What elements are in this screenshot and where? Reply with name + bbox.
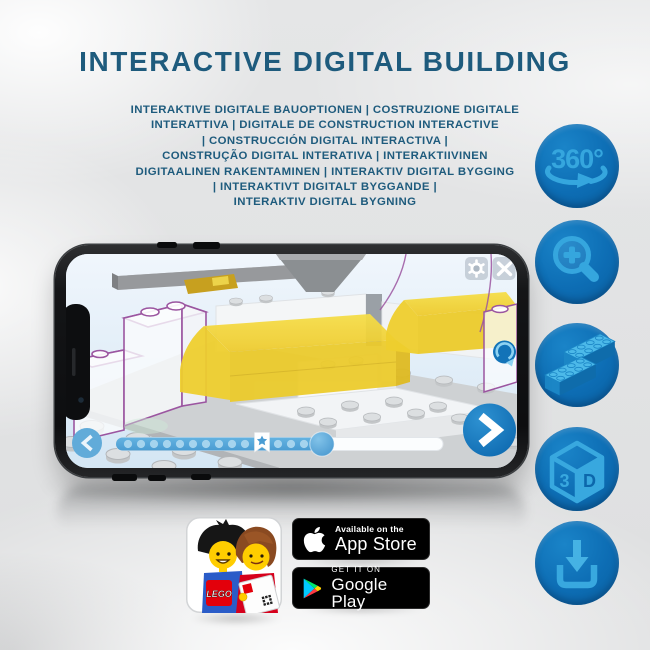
google-play-badge[interactable]: GET IT ON Google Play [292, 567, 430, 609]
zoom-in-icon [535, 220, 619, 304]
side-button [112, 474, 137, 481]
360-rotation-icon: 360° [535, 124, 619, 208]
feature-3d: 3 D [535, 427, 619, 511]
apple-icon [303, 525, 326, 554]
close-button[interactable] [493, 257, 516, 280]
cube-face-d: D [583, 471, 596, 491]
girl-hand [239, 593, 247, 601]
next-step-button[interactable] [463, 404, 516, 457]
front-camera [78, 397, 84, 403]
feature-zoom [535, 220, 619, 304]
boy-head [209, 541, 237, 569]
app-store-badge[interactable]: Available on the App Store [292, 518, 430, 560]
feature-brick [535, 323, 619, 407]
previous-step-button[interactable] [72, 428, 102, 458]
phone-screen [66, 254, 517, 468]
google-play-name: Google Play [331, 576, 419, 610]
side-button [148, 475, 166, 481]
girl-head [243, 544, 270, 571]
feature-download [535, 521, 619, 605]
marketing-panel: INTERACTIVE DIGITAL BUILDING INTERAKTIVE… [0, 0, 650, 650]
lego-brick-icon [535, 323, 619, 407]
phone-mockup [55, 245, 528, 477]
lego-logo-text: LEGO [206, 589, 232, 599]
app-store-name: App Store [335, 535, 417, 553]
lego-app-icon-art: LEGO [186, 517, 282, 613]
google-play-tagline: GET IT ON [331, 566, 419, 574]
settings-button[interactable] [465, 257, 488, 280]
feature-360-rotation: 360° [535, 124, 619, 208]
power-button [157, 242, 177, 248]
volume-button [193, 242, 220, 249]
side-button [191, 474, 211, 480]
app-store-tagline: Available on the [335, 525, 417, 534]
subtitle-translations: INTERAKTIVE DIGITALE BAUOPTIONEN | COSTR… [90, 103, 560, 211]
cube-face-3: 3 [559, 471, 569, 491]
lego-builder-app [66, 254, 517, 468]
lego-app-icon[interactable]: LEGO [186, 517, 282, 613]
notch [66, 304, 90, 420]
3d-cube-icon: 3 D [535, 427, 619, 511]
earpiece-speaker [72, 348, 76, 376]
app-icon-shadow [190, 612, 282, 625]
360-label: 360° [551, 144, 603, 174]
google-play-icon [303, 577, 322, 600]
download-icon [535, 521, 619, 605]
mint-tint [124, 418, 168, 434]
page-title: INTERACTIVE DIGITAL BUILDING [0, 46, 650, 78]
slider-handle[interactable] [310, 432, 334, 456]
